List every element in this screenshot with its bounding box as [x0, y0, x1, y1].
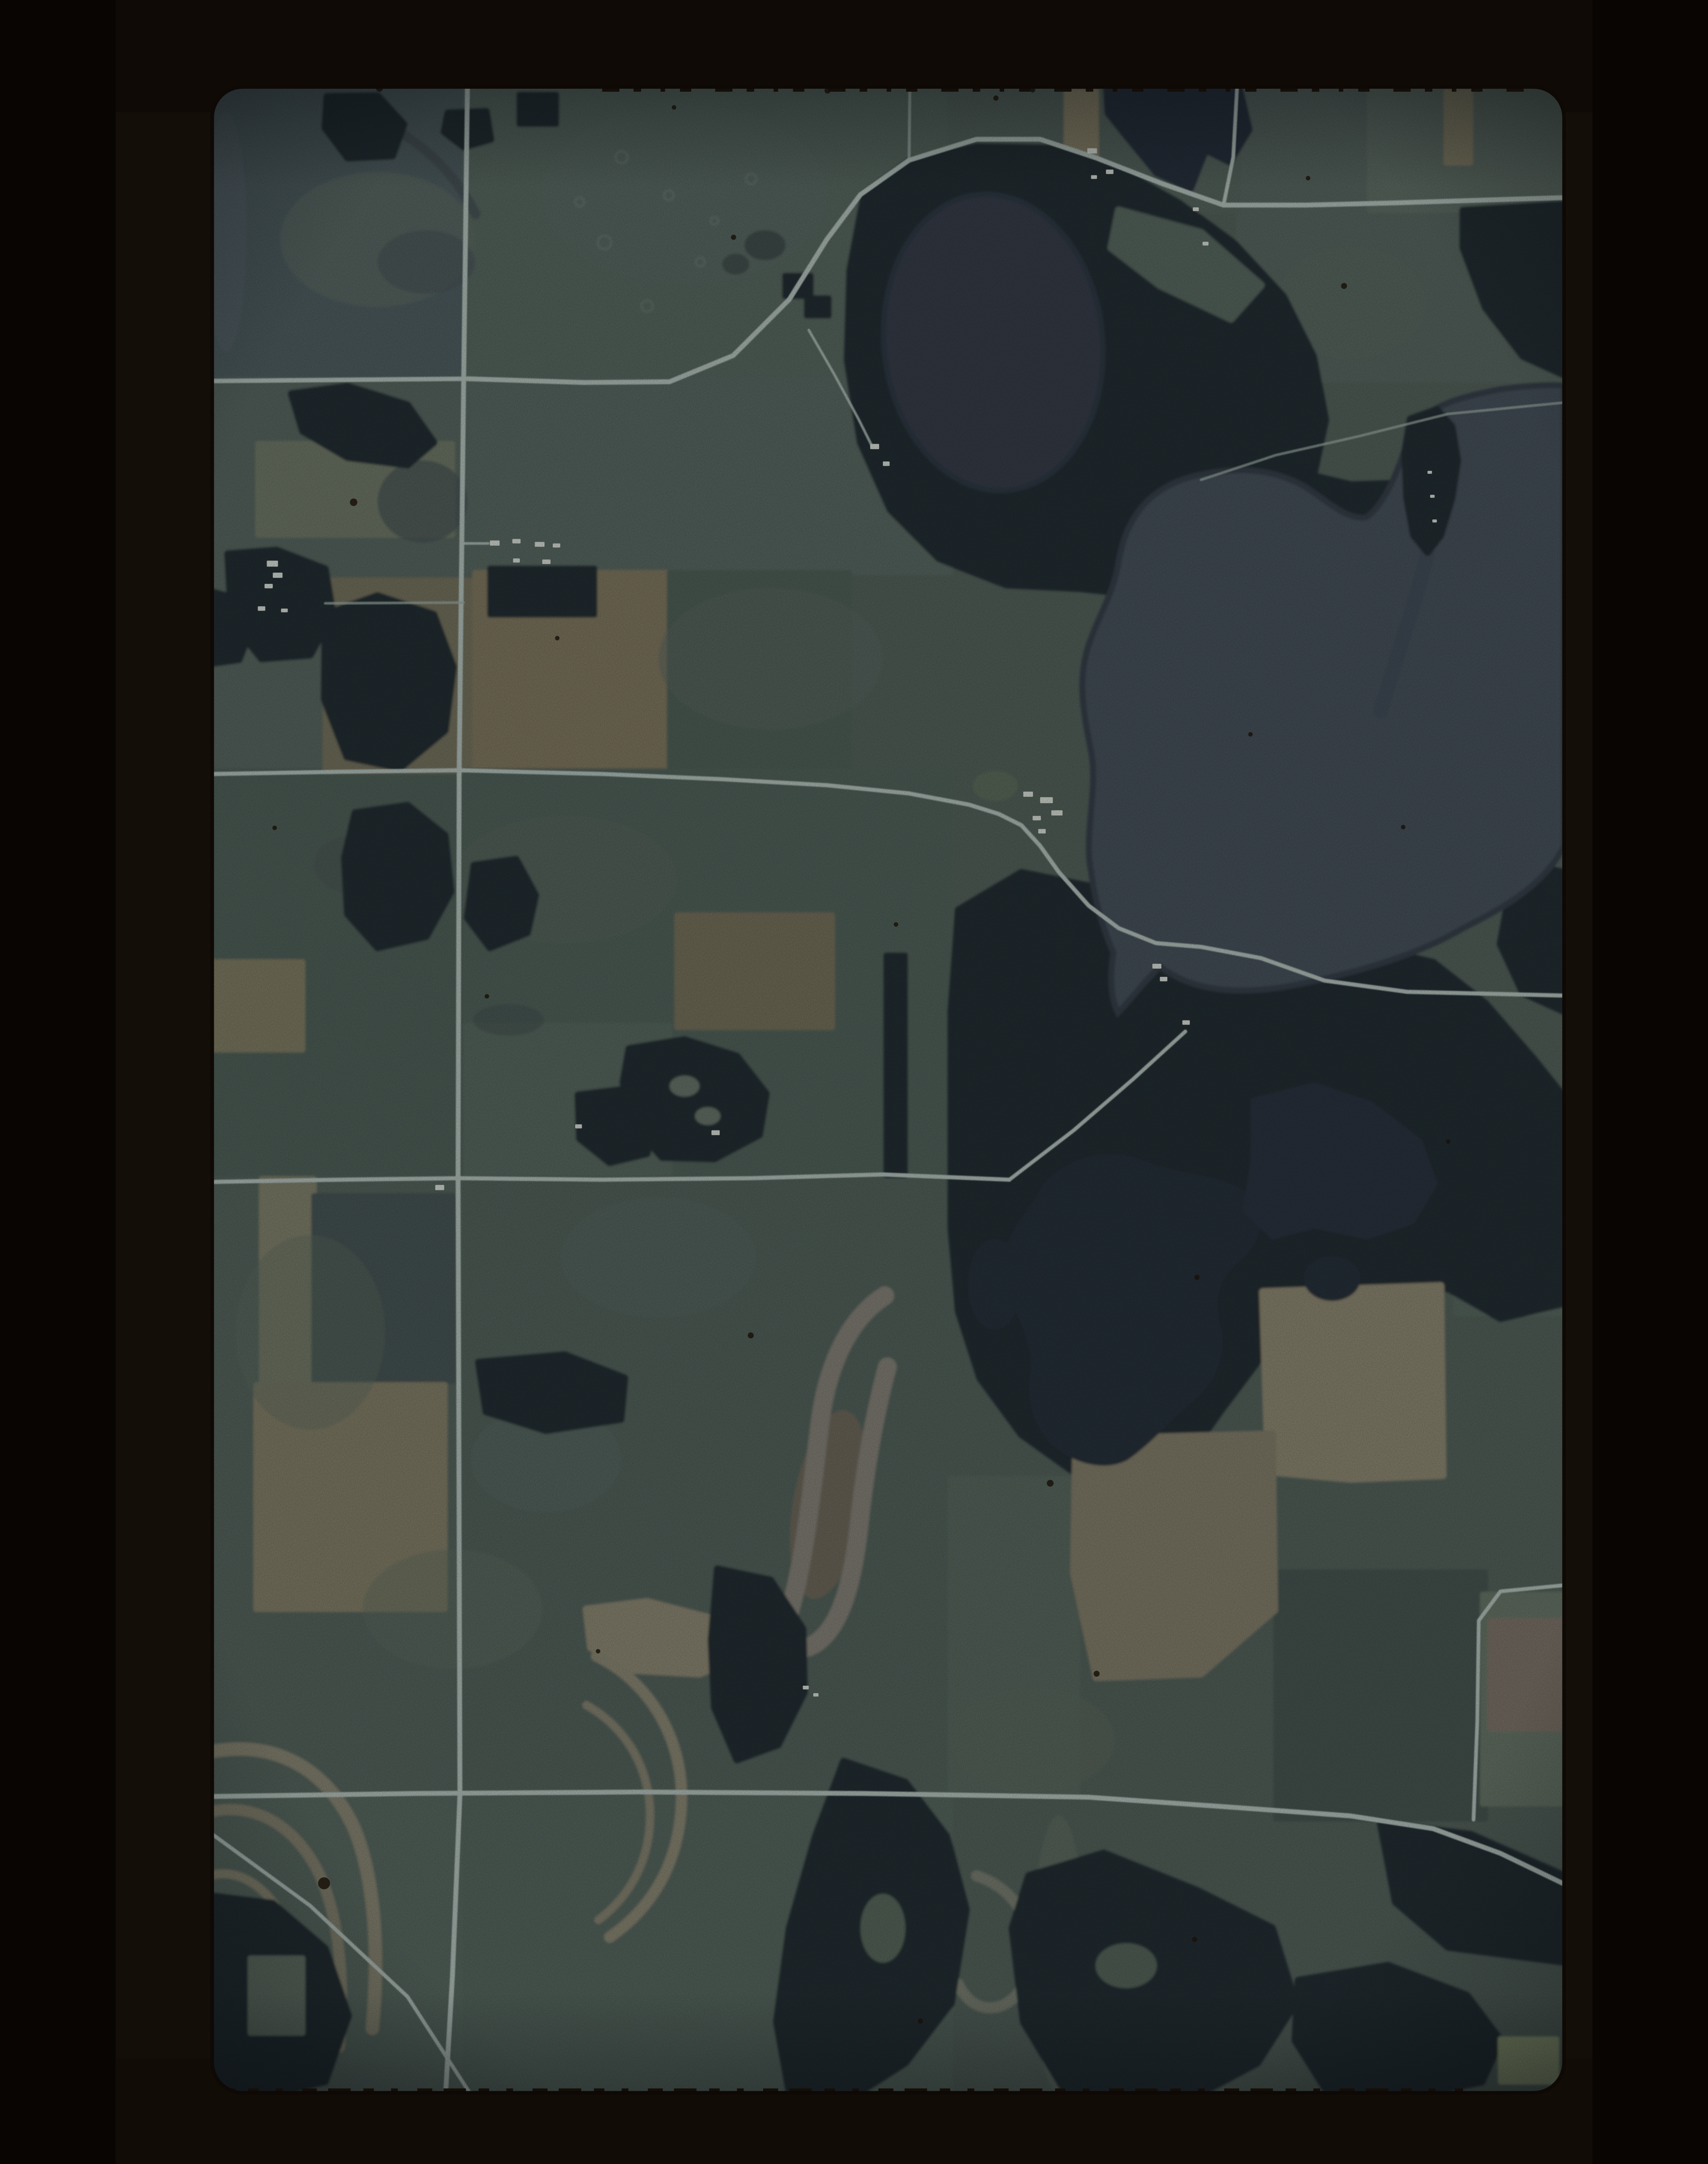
aerial-photo-content [205, 85, 1564, 2093]
scanned-slide-stage [0, 0, 1708, 2164]
aerial-photo-slide [116, 0, 1592, 2164]
vignette [212, 87, 1564, 2093]
